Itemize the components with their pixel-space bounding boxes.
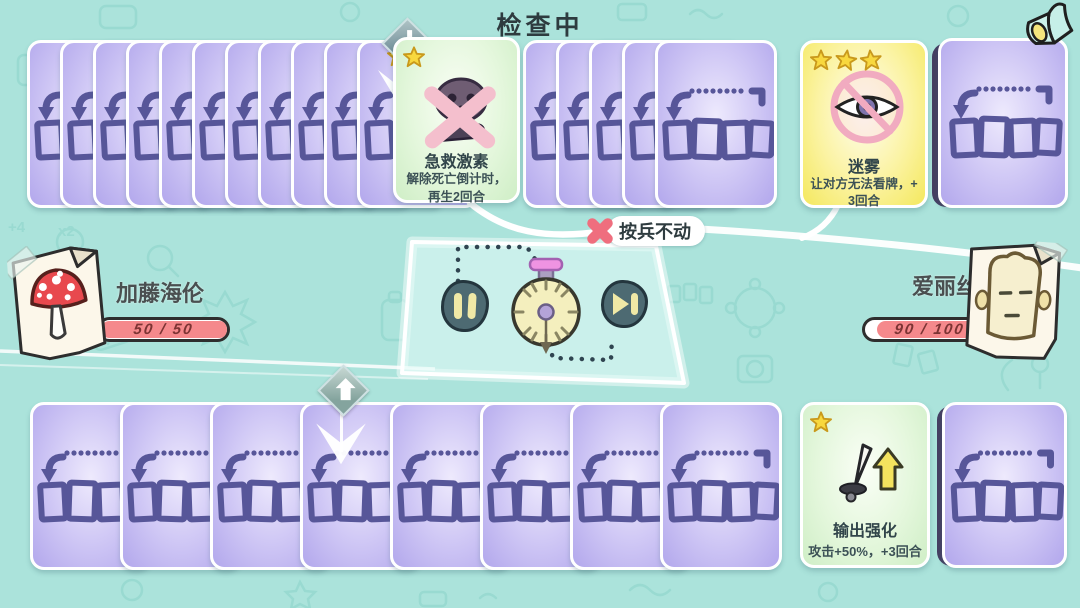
- pause-icon: [452, 291, 478, 321]
- card-title: 输出强化: [803, 517, 927, 541]
- card-back-icon: [945, 445, 1064, 523]
- horn-icon[interactable]: [1016, 0, 1080, 52]
- face-down-card[interactable]: [655, 40, 777, 208]
- mushroom-avatar-icon: [6, 241, 110, 365]
- toast-avatar-icon: [956, 237, 1068, 368]
- turn-timer: [504, 254, 588, 360]
- card-title: 急救激素: [396, 148, 517, 172]
- card-desc-line: 3回合: [803, 192, 925, 210]
- card-back-icon: [941, 81, 1065, 159]
- phase-title: 检查中: [0, 6, 1080, 42]
- opponent-avatar: [6, 241, 110, 365]
- card-attack-boost[interactable]: 输出强化 攻击+50%，+3回合: [800, 402, 930, 568]
- card-back-icon: [658, 83, 774, 161]
- skip-icon: [610, 289, 640, 319]
- game-screen: +4 x2 检查中: [0, 0, 1080, 608]
- eye-banned-icon: [827, 67, 907, 147]
- status-pill: 按兵不动: [607, 216, 705, 246]
- insert-chevron-bottom: [313, 420, 369, 466]
- card-desc-line: 解除死亡倒计时，: [396, 170, 517, 188]
- deck-top-card: [942, 402, 1067, 568]
- cross-x-icon: [583, 214, 617, 248]
- svg-text:+4: +4: [8, 219, 26, 236]
- star-icon: [810, 411, 832, 433]
- card-title: 迷雾: [803, 153, 925, 177]
- opponent-name: 加藤海伦: [116, 276, 204, 308]
- deck-top-card: [938, 38, 1068, 208]
- card-desc-line: 再生2回合: [396, 188, 517, 206]
- face-down-card[interactable]: [660, 402, 782, 570]
- stopwatch-icon: [504, 254, 588, 360]
- card-star-row: [810, 411, 832, 433]
- status-label: 按兵不动: [619, 218, 691, 244]
- opponent-hp-text: 50 / 50: [99, 320, 229, 339]
- dagger-up-arrow-icon: [833, 443, 905, 505]
- card-desc-line: 攻击+50%，+3回合: [803, 543, 927, 562]
- opponent-hp-bar: 50 / 50: [97, 317, 230, 342]
- up-arrow-icon: [331, 375, 359, 403]
- card-mist[interactable]: 迷雾 让对方无法看牌，+ 3回合: [800, 40, 928, 208]
- card-back-icon: [663, 445, 779, 523]
- card-desc-line: 让对方无法看牌，+: [803, 175, 925, 193]
- player-avatar: [956, 237, 1068, 368]
- card-first-aid[interactable]: 急救激素 解除死亡倒计时， 再生2回合: [393, 37, 520, 203]
